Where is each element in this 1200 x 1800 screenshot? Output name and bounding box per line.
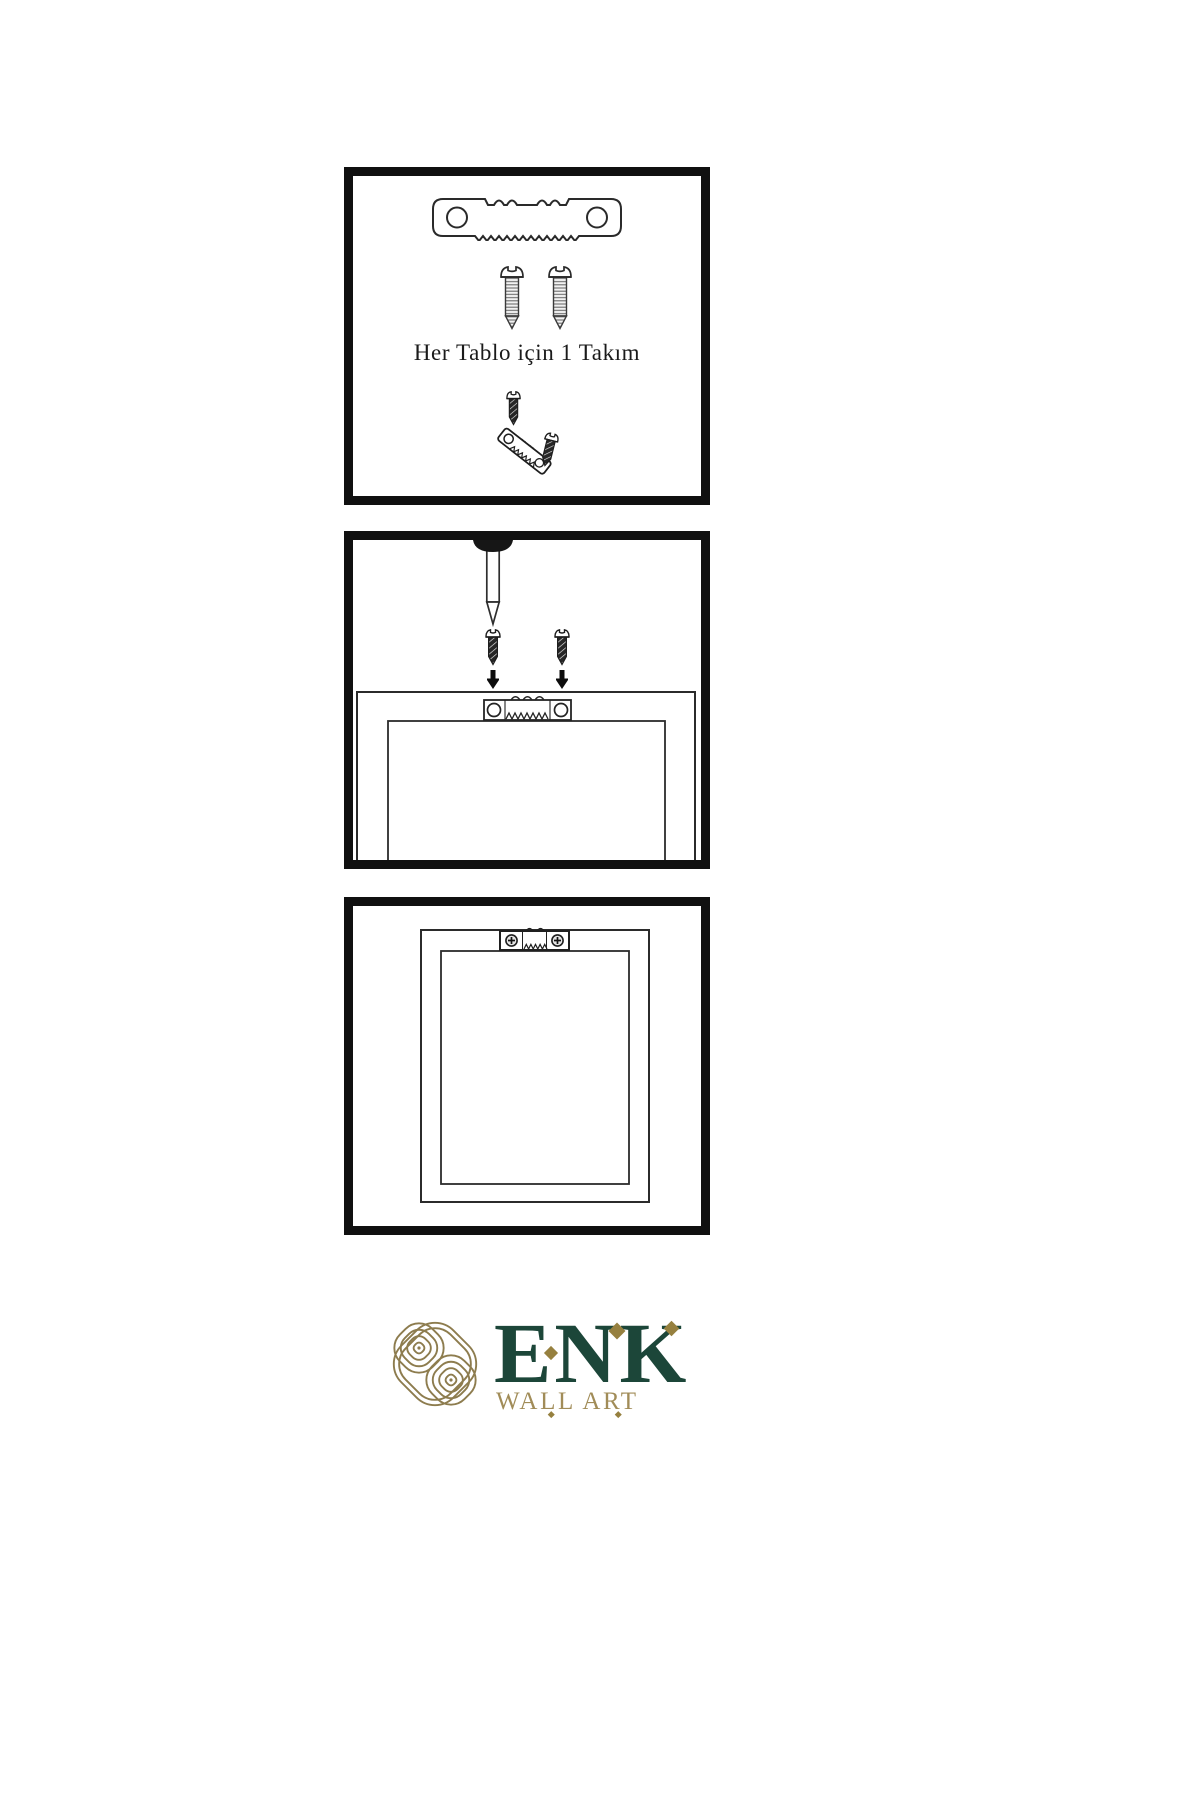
step-panel-hardware-kit: Her Tablo için 1 Takım (344, 167, 710, 505)
screw-into-hanger-icon (493, 390, 589, 490)
page: Her Tablo için 1 Takım (0, 0, 1200, 1800)
step-panel-wall-mounting (344, 531, 710, 869)
frame-back-outline (353, 906, 701, 1226)
sawtooth-hanger-icon (483, 693, 572, 723)
installed-sawtooth-hanger-icon (499, 926, 570, 953)
step-panel-hung-frame (344, 897, 710, 1235)
screw-icon (547, 264, 573, 330)
kit-caption: Her Tablo için 1 Takım (353, 340, 701, 366)
enk-knot-logo-icon (381, 1308, 490, 1420)
screw-icon (499, 264, 525, 330)
brand-name: ENK (494, 1310, 689, 1396)
sawtooth-hanger-icon (431, 194, 623, 241)
